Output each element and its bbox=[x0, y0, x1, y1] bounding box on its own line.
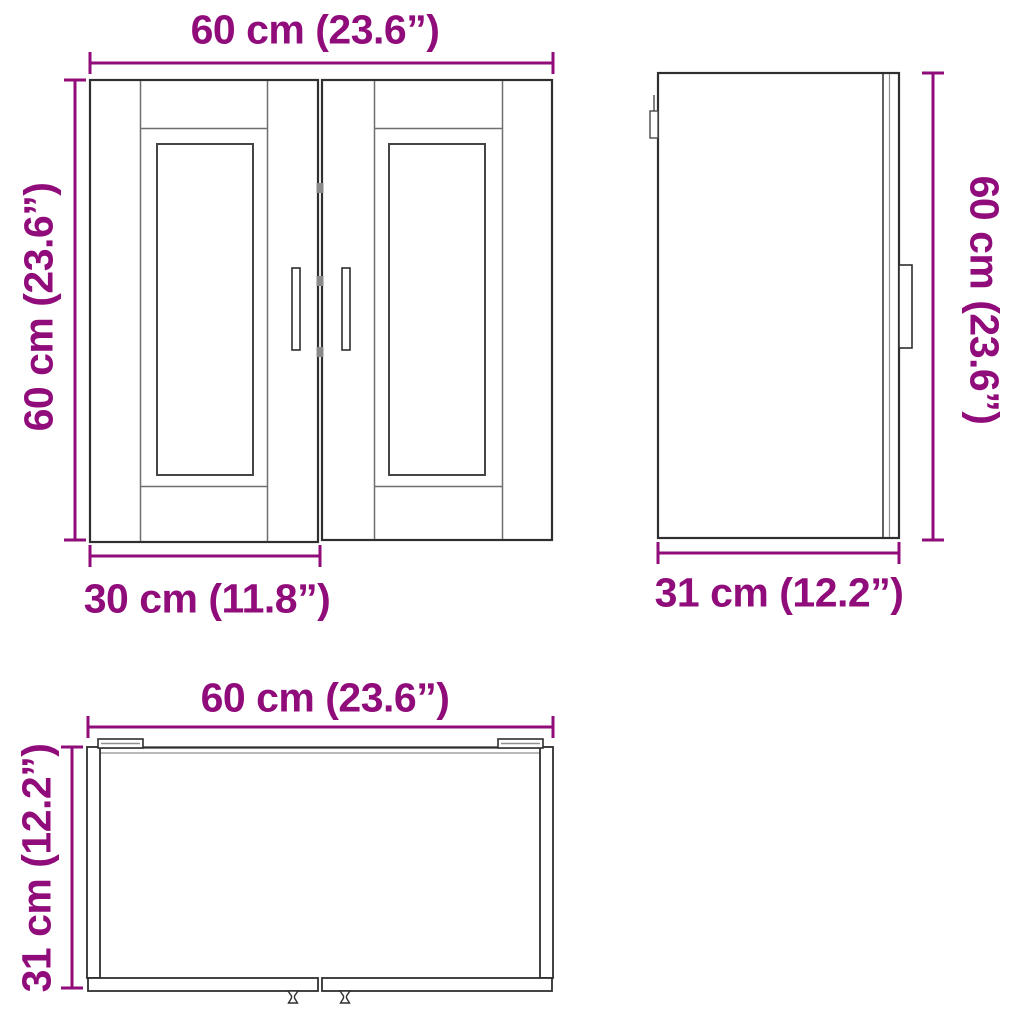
top-right-mount-plate bbox=[498, 739, 543, 748]
side-depth-dimension-line bbox=[658, 542, 899, 564]
side-cabinet-body bbox=[650, 73, 912, 538]
front-door-width-label: 30 cm (11.8”) bbox=[84, 579, 331, 620]
front-height-label: 60 cm (23.6”) bbox=[19, 183, 60, 432]
front-view bbox=[64, 52, 553, 567]
right-door-handle bbox=[342, 268, 350, 350]
right-door-panel bbox=[389, 144, 485, 475]
front-width-dimension-line bbox=[90, 52, 553, 74]
top-right-side-panel bbox=[540, 747, 553, 978]
top-cabinet-body bbox=[87, 739, 553, 1003]
front-width-label: 60 cm (23.6”) bbox=[191, 10, 440, 51]
product-dimension-diagram: 60 cm (23.6”) 60 cm (23.6”) 30 cm (11.8”… bbox=[0, 0, 1024, 1024]
top-width-label: 60 cm (23.6”) bbox=[201, 678, 450, 719]
front-door-width-dimension-line bbox=[90, 545, 320, 567]
top-left-door-edge bbox=[88, 978, 318, 991]
side-wall-mount-bracket bbox=[650, 95, 658, 138]
side-door-handle bbox=[899, 265, 912, 348]
top-view bbox=[61, 716, 553, 1003]
side-height-dimension-line bbox=[922, 73, 944, 540]
front-right-door bbox=[322, 80, 552, 540]
top-right-handle-profile bbox=[340, 991, 350, 1003]
top-left-side-panel bbox=[87, 747, 100, 978]
left-door-panel bbox=[157, 144, 253, 475]
top-depth-label: 31 cm (12.2”) bbox=[17, 744, 58, 993]
side-body-outline bbox=[658, 73, 899, 538]
top-right-door-edge bbox=[322, 978, 552, 991]
side-depth-label: 31 cm (12.2”) bbox=[655, 573, 904, 614]
top-left-mount-plate bbox=[98, 739, 143, 748]
top-left-handle-profile bbox=[288, 991, 298, 1003]
front-height-dimension-line bbox=[64, 80, 86, 540]
side-height-label: 60 cm (23.6”) bbox=[964, 176, 1005, 425]
front-left-door bbox=[90, 80, 318, 542]
left-door-handle bbox=[292, 268, 300, 350]
diagram-canvas bbox=[0, 0, 1024, 1024]
side-view bbox=[650, 73, 944, 564]
top-depth-dimension-line bbox=[61, 747, 83, 988]
